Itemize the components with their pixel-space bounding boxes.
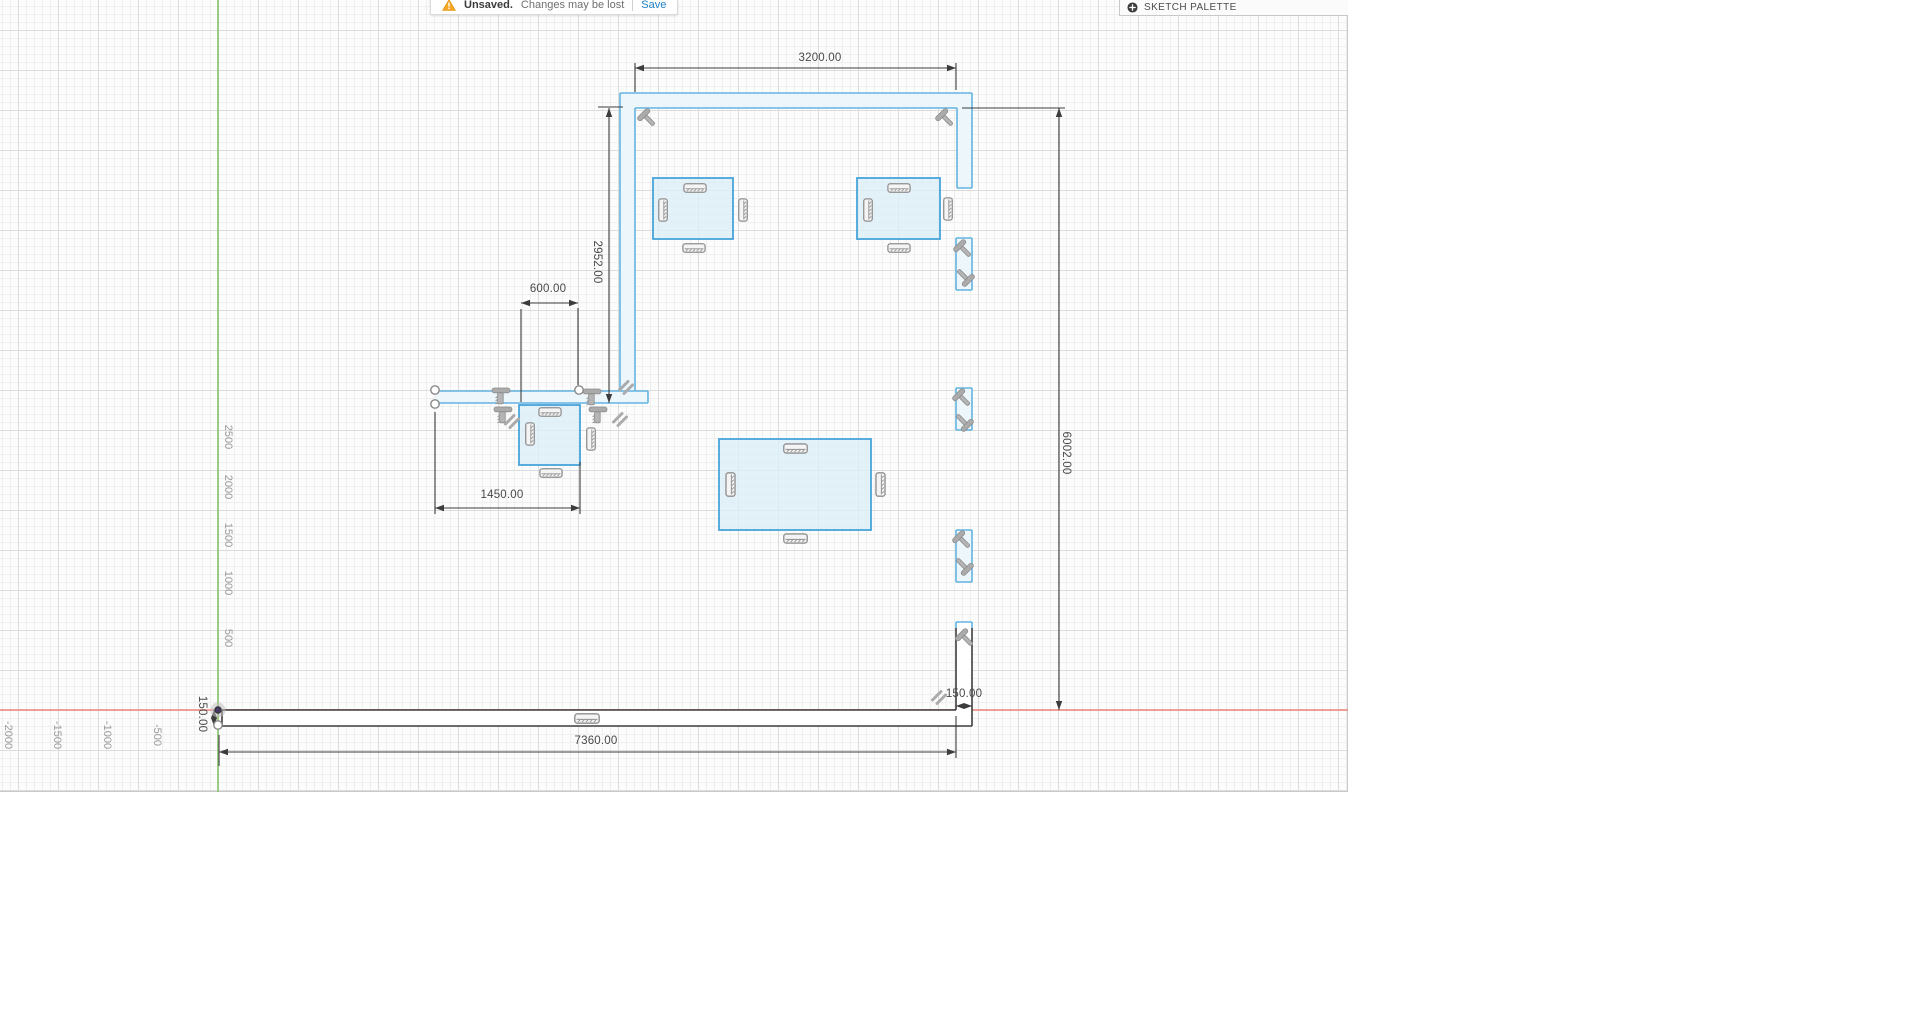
unsaved-label: Unsaved. — [464, 0, 513, 11]
fix-constraint-icon — [637, 108, 659, 130]
sketch-palette-title: SKETCH PALETTE — [1144, 2, 1237, 13]
dim-3200-line — [635, 63, 956, 92]
parallel-constraint-icon — [614, 414, 627, 426]
circle-plus-icon[interactable] — [1127, 2, 1138, 13]
sketch-point — [431, 400, 439, 408]
y-axis-label-2000: 2000 — [222, 475, 234, 499]
dim-600-line — [521, 303, 578, 402]
dim-label-2952[interactable]: 2952.00 — [591, 241, 603, 284]
dim-label-6002[interactable]: 6002.00 — [1060, 432, 1072, 475]
origin-point[interactable] — [211, 703, 226, 718]
dim-label-600[interactable]: 600.00 — [530, 283, 566, 295]
unsaved-message: Changes may be lost — [521, 0, 624, 11]
y-axis-label-1000: 1000 — [222, 571, 234, 595]
y-axis-label-2500: 2500 — [222, 425, 234, 449]
perpendicular-constraint-icon — [589, 407, 607, 423]
sketch-geometry — [0, 0, 1348, 792]
dim-label-1450[interactable]: 1450.00 — [481, 489, 524, 501]
sketch-palette-panel[interactable]: SKETCH PALETTE — [1119, 0, 1348, 16]
parallel-constraint-icon — [933, 692, 946, 704]
walls-blue[interactable] — [435, 93, 972, 628]
fix-constraint-icon — [935, 108, 957, 130]
dim-label-150-right[interactable]: 150.00 — [946, 688, 982, 700]
warning-icon — [442, 0, 456, 11]
y-axis-label-500: 500 — [222, 629, 234, 647]
dimension-lines[interactable] — [214, 63, 1065, 766]
x-axis-label-n2000: -2000 — [2, 721, 14, 749]
y-axis-label-1500: 1500 — [222, 523, 234, 547]
dimension-arrows — [211, 65, 1062, 755]
sketch-point — [214, 721, 222, 729]
dim-6002-line — [962, 108, 1065, 710]
fusion-sketch-viewport: 3200.00 2952.00 600.00 1450.00 6002.00 7… — [0, 0, 1920, 1032]
sketch-point — [431, 386, 439, 394]
x-axis-label-n500: -500 — [151, 724, 163, 746]
save-button[interactable]: Save — [641, 0, 666, 11]
unsaved-banner: Unsaved. Changes may be lost Save — [430, 0, 678, 15]
x-axis-label-n1500: -1500 — [51, 721, 63, 749]
x-axis-label-n1000: -1000 — [101, 721, 113, 749]
dim-label-3200[interactable]: 3200.00 — [799, 52, 842, 64]
toolbar-divider — [632, 0, 633, 11]
dim-label-7360[interactable]: 7360.00 — [575, 735, 618, 747]
sketch-canvas[interactable]: 3200.00 2952.00 600.00 1450.00 6002.00 7… — [0, 0, 1348, 792]
sketch-point — [575, 386, 583, 394]
parallel-constraint-icon — [506, 416, 519, 428]
dim-label-150-left[interactable]: 150.00 — [196, 696, 208, 732]
